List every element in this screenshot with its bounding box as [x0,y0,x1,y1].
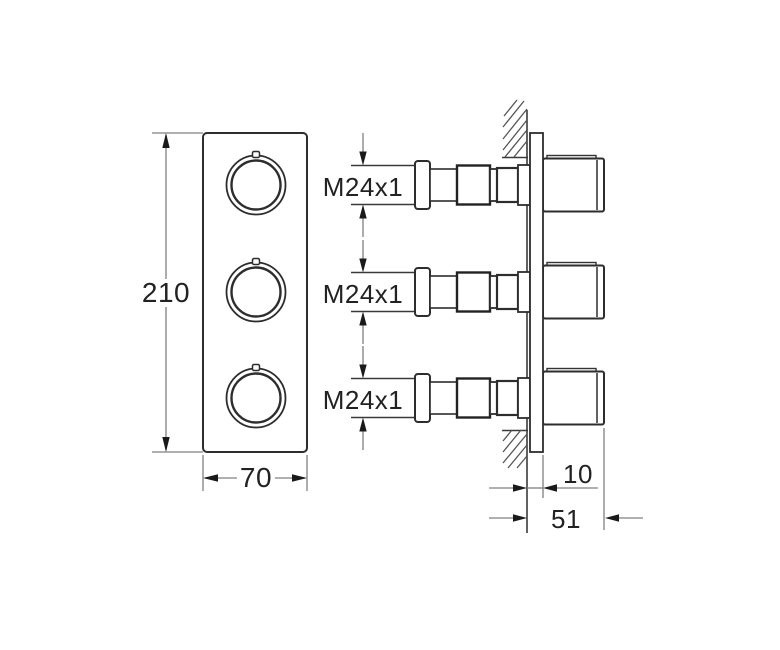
faceplate-side [530,133,543,452]
height-dim-label: 210 [139,279,193,307]
hatch-stroke [503,430,521,452]
depth-arrow-left [605,514,619,521]
width-dim-label: 70 [237,464,275,492]
hatch-stroke [517,456,527,468]
technical-drawing-page: 210 70 M24x1 M24x1 M24x1 10 51 [0,0,780,650]
width-arrow-left [203,474,218,481]
front-view [203,133,307,452]
offset-arrow-right [513,484,527,491]
depth-dim-label: 51 [548,506,584,532]
height-arrow-down [162,437,169,452]
faceplate-front [203,133,307,452]
width-arrow-right [292,474,307,481]
valve-dimension-drawing [0,0,780,650]
hatch-stroke [508,445,527,468]
hatch-stroke [504,100,517,116]
offset-arrow-left [543,484,557,491]
wall-hatch-bottom [502,430,528,468]
thread-label-top: M24x1 [320,174,407,200]
offset-dim-label: 10 [560,461,596,487]
wall-hatch-top [502,100,528,158]
height-arrow-up [162,133,169,148]
depth-arrow-right [513,514,527,521]
thread-label-middle: M24x1 [320,281,407,307]
hatch-stroke [503,430,512,441]
thread-label-bottom: M24x1 [320,387,407,413]
